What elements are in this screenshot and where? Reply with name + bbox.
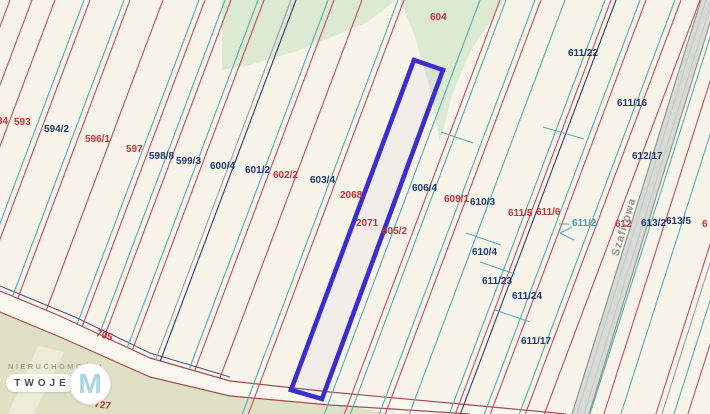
watermark-ribbon: TWOJE [6, 374, 74, 392]
watermark-monogram: M [78, 370, 101, 398]
watermark-logo: NIERUCHOMOŚCI TWOJE M [5, 358, 135, 412]
watermark-brand: TWOJE [10, 378, 70, 389]
watermark-monogram-circle: M [69, 363, 111, 405]
cadastral-map-canvas[interactable]: 34593594/2596/1597598/8599/3600/4601/260… [0, 0, 710, 414]
map-drawing [0, 0, 710, 414]
